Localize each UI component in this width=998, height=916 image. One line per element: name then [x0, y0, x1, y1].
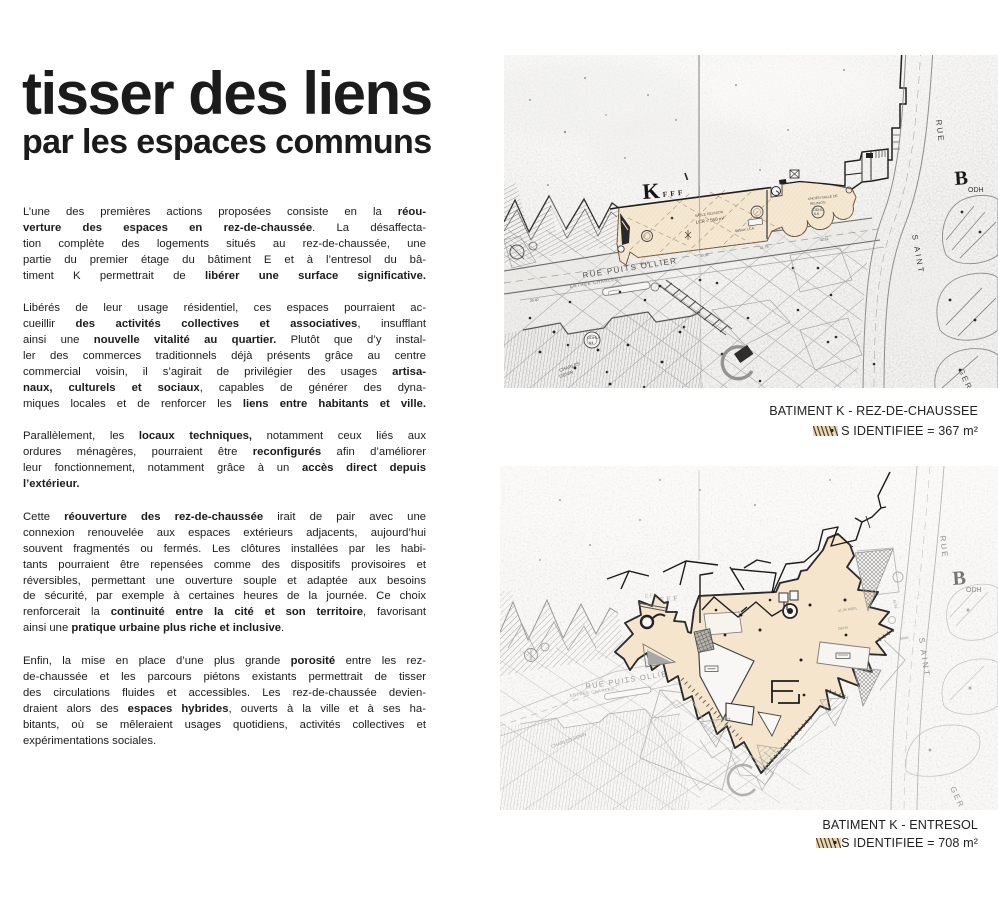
svg-text:B: B	[952, 567, 967, 590]
svg-text:ODH: ODH	[968, 187, 984, 194]
svg-text:6.6: 6.6	[814, 212, 819, 216]
svg-text:K: K	[642, 178, 661, 204]
svg-text:ODH: ODH	[966, 587, 982, 594]
svg-text:64: 64	[589, 340, 594, 345]
svg-text:B: B	[954, 167, 969, 190]
